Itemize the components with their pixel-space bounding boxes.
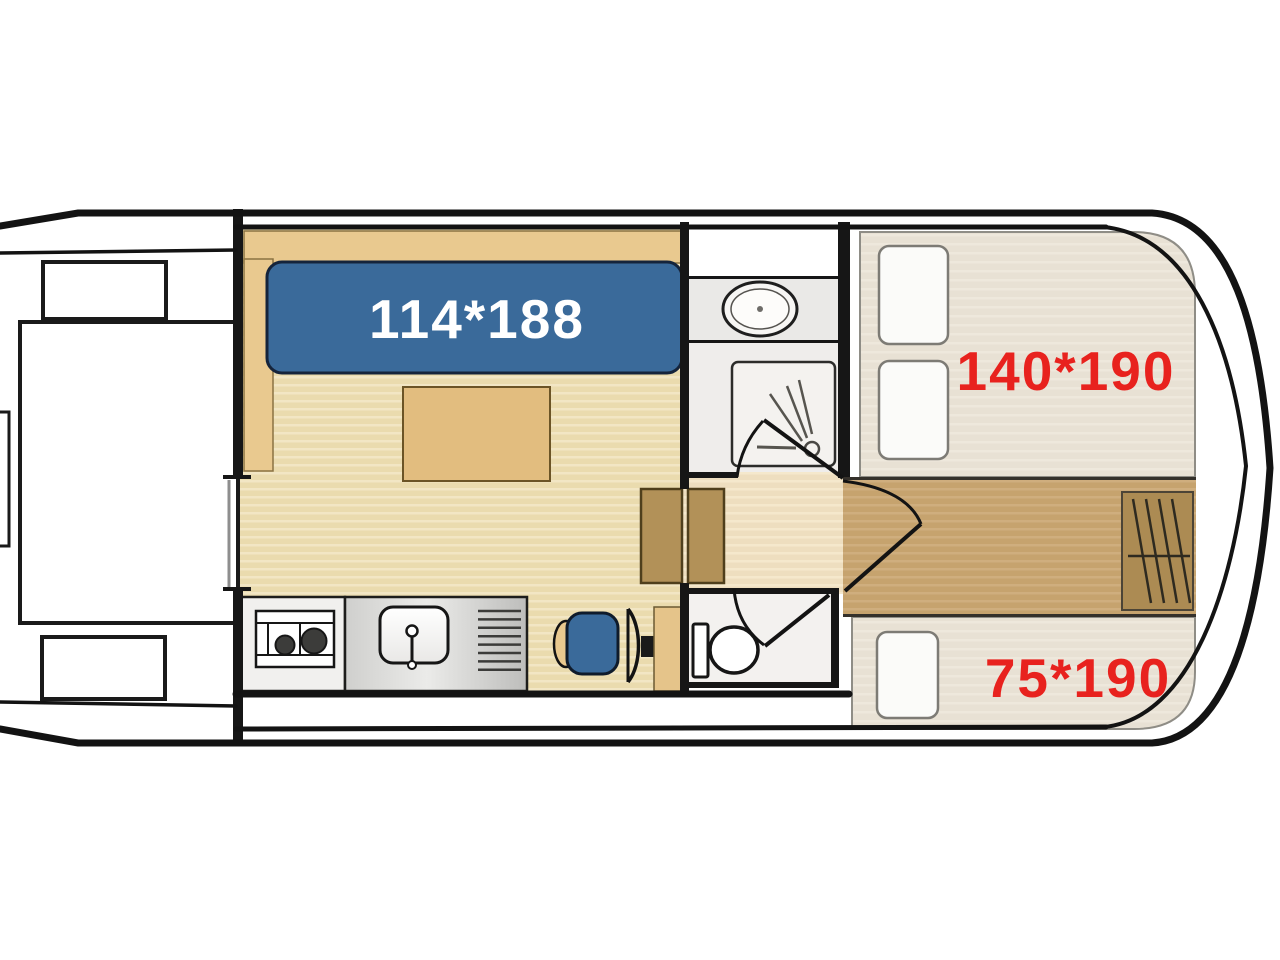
door-jamb: [223, 587, 251, 591]
deck-top-rail: [0, 250, 236, 253]
pillow: [879, 246, 948, 344]
corridor-cabinet: [688, 489, 724, 583]
deck-bottom-rail: [0, 702, 236, 706]
bathroom-right-wall: [838, 222, 850, 478]
aft-deck: [0, 262, 238, 699]
deck-wall-lower: [233, 588, 243, 740]
stern-platform: [0, 412, 9, 546]
deck-bench-bottom: [42, 637, 165, 699]
stove-icon: [256, 611, 334, 667]
helm-console: [654, 607, 683, 691]
floor-plan-canvas: 114*188 140*190 75*190: [0, 0, 1280, 960]
berth-edge-line: [843, 614, 1196, 617]
toilet-icon: [693, 624, 758, 677]
toilet-top-wall: [688, 588, 839, 594]
double-berth-dimension-label: 140*190: [957, 340, 1176, 402]
sink-icon: [380, 607, 448, 669]
pillow: [879, 361, 948, 459]
cabin-bottom-bulwark: [236, 727, 1106, 729]
shower-bottom-wall: [688, 472, 738, 478]
single-berth-dimension-label: 75*190: [985, 647, 1171, 709]
bathroom-cabinet-top: [689, 229, 838, 276]
deck-bench-top: [43, 262, 166, 319]
toilet-right-wall: [831, 588, 839, 688]
door-jamb: [223, 475, 251, 479]
deck-table: [20, 322, 238, 623]
washbasin-icon: [723, 282, 797, 336]
toilet-bottom-wall: [688, 682, 839, 688]
bathroom-left-wall-lower: [680, 583, 689, 695]
saloon-berth-dimension-label: 114*188: [369, 288, 585, 350]
saloon-table: [403, 387, 550, 481]
vanity-counter-edge: [689, 340, 838, 343]
helm-seat: [567, 613, 618, 674]
bathroom-left-wall-upper: [680, 222, 689, 489]
boat-floor-plan: 114*188 140*190 75*190: [0, 0, 1280, 960]
galley: [241, 597, 527, 691]
vanity-counter-edge: [689, 276, 838, 279]
saloon-bench-top: [244, 231, 683, 263]
berth-edge-line: [843, 477, 1196, 480]
companionway-steps-hatch: [1122, 492, 1193, 610]
pillow: [877, 632, 938, 718]
wheel-hub: [641, 636, 654, 657]
toilet-room-floor: [689, 594, 831, 682]
saloon-cabinet: [641, 489, 682, 583]
